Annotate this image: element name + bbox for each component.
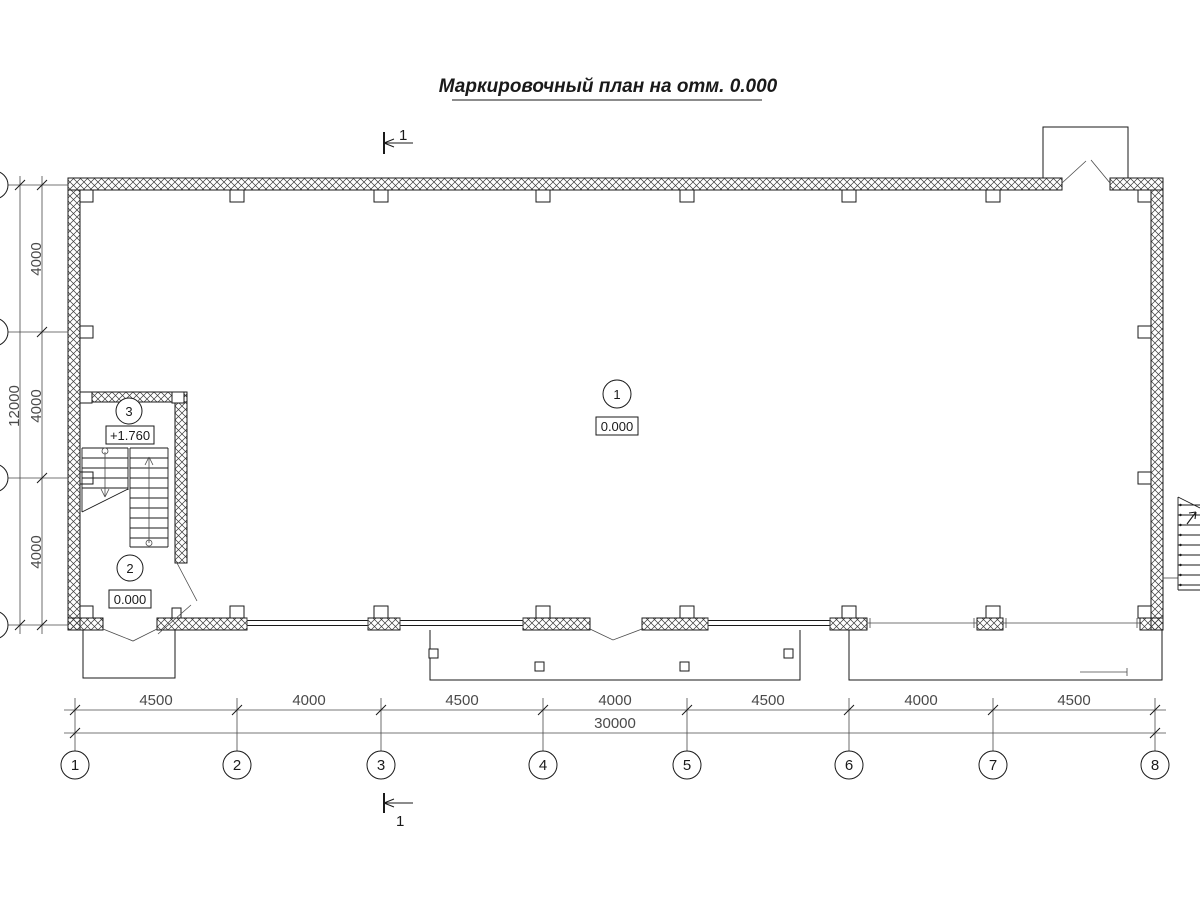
drawing-sheet: Маркировочный план на отм. 0.000 1 1 bbox=[0, 0, 1200, 900]
axis-bubble-5: 5 bbox=[683, 757, 691, 774]
room-elevation-2: 0.000 bbox=[114, 592, 147, 607]
top-wall-right bbox=[1110, 178, 1163, 190]
dim-bottom-7: 4500 bbox=[1057, 692, 1090, 709]
door-swing-middle-entrance bbox=[590, 629, 642, 640]
axis-bubble-6: 6 bbox=[845, 757, 853, 774]
left-wall bbox=[68, 190, 80, 630]
room-marker-1: 1 0.000 bbox=[596, 380, 638, 435]
dim-bottom-3: 4500 bbox=[445, 692, 478, 709]
section-bottom-label: 1 bbox=[396, 813, 404, 830]
dim-left-2: 4000 bbox=[28, 389, 45, 422]
room-number-2: 2 bbox=[126, 561, 133, 576]
room-elevation-1: 0.000 bbox=[601, 419, 634, 434]
room-marker-2: 2 0.000 bbox=[109, 555, 151, 608]
door-swing-top-entrance bbox=[1062, 160, 1110, 183]
porch-step-mark bbox=[1080, 668, 1127, 676]
room-marker-3: 3 +1.760 bbox=[106, 398, 154, 444]
dim-bottom-total: 30000 bbox=[594, 715, 636, 732]
porch-left bbox=[83, 630, 175, 678]
dim-left-total: 12000 bbox=[6, 385, 23, 427]
top-wall-left bbox=[68, 178, 1062, 190]
dim-left-3: 4000 bbox=[28, 535, 45, 568]
axis-bubbles: 1 2 3 4 5 6 7 8 bbox=[61, 751, 1169, 779]
axis-bubble-8: 8 bbox=[1151, 757, 1159, 774]
axis-bubble-2: 2 bbox=[233, 757, 241, 774]
left-dimensions: 4000 4000 4000 12000 bbox=[0, 171, 68, 639]
section-mark-top: 1 bbox=[384, 127, 413, 154]
fire-ladder bbox=[1163, 497, 1200, 590]
dim-bottom-5: 4500 bbox=[751, 692, 784, 709]
dim-bottom-6: 4000 bbox=[904, 692, 937, 709]
axis-bubble-4: 4 bbox=[539, 757, 547, 774]
dim-bottom-2: 4000 bbox=[292, 692, 325, 709]
axis-bubble-1: 1 bbox=[71, 757, 79, 774]
right-wall bbox=[1151, 190, 1163, 630]
axis-bubble-3: 3 bbox=[377, 757, 385, 774]
room-number-3: 3 bbox=[125, 404, 132, 419]
axis-bubble-7: 7 bbox=[989, 757, 997, 774]
porch-right bbox=[849, 630, 1162, 680]
stair-flight-up bbox=[130, 448, 168, 547]
porch-middle bbox=[430, 630, 800, 680]
dim-bottom-4: 4000 bbox=[598, 692, 631, 709]
porches bbox=[83, 630, 1162, 680]
dim-bottom-1: 4500 bbox=[139, 692, 172, 709]
floor-plan-canvas: Маркировочный план на отм. 0.000 1 1 bbox=[0, 0, 1200, 900]
plan-title: Маркировочный план на отм. 0.000 bbox=[439, 76, 778, 97]
room-number-1: 1 bbox=[613, 387, 620, 402]
stair-wall-vertical bbox=[175, 392, 187, 563]
title-block: Маркировочный план на отм. 0.000 bbox=[439, 76, 778, 100]
door-swing-left-entrance bbox=[103, 629, 157, 641]
stair-door-leaf bbox=[172, 608, 181, 618]
vestibule-outline bbox=[1043, 127, 1128, 178]
section-mark-bottom: 1 bbox=[384, 793, 413, 830]
bottom-dimensions: 4500 4000 4500 4000 4500 4000 4500 30000… bbox=[61, 692, 1169, 779]
section-top-label: 1 bbox=[399, 127, 407, 144]
room-elevation-3: +1.760 bbox=[110, 428, 150, 443]
dim-left-1: 4000 bbox=[28, 242, 45, 275]
